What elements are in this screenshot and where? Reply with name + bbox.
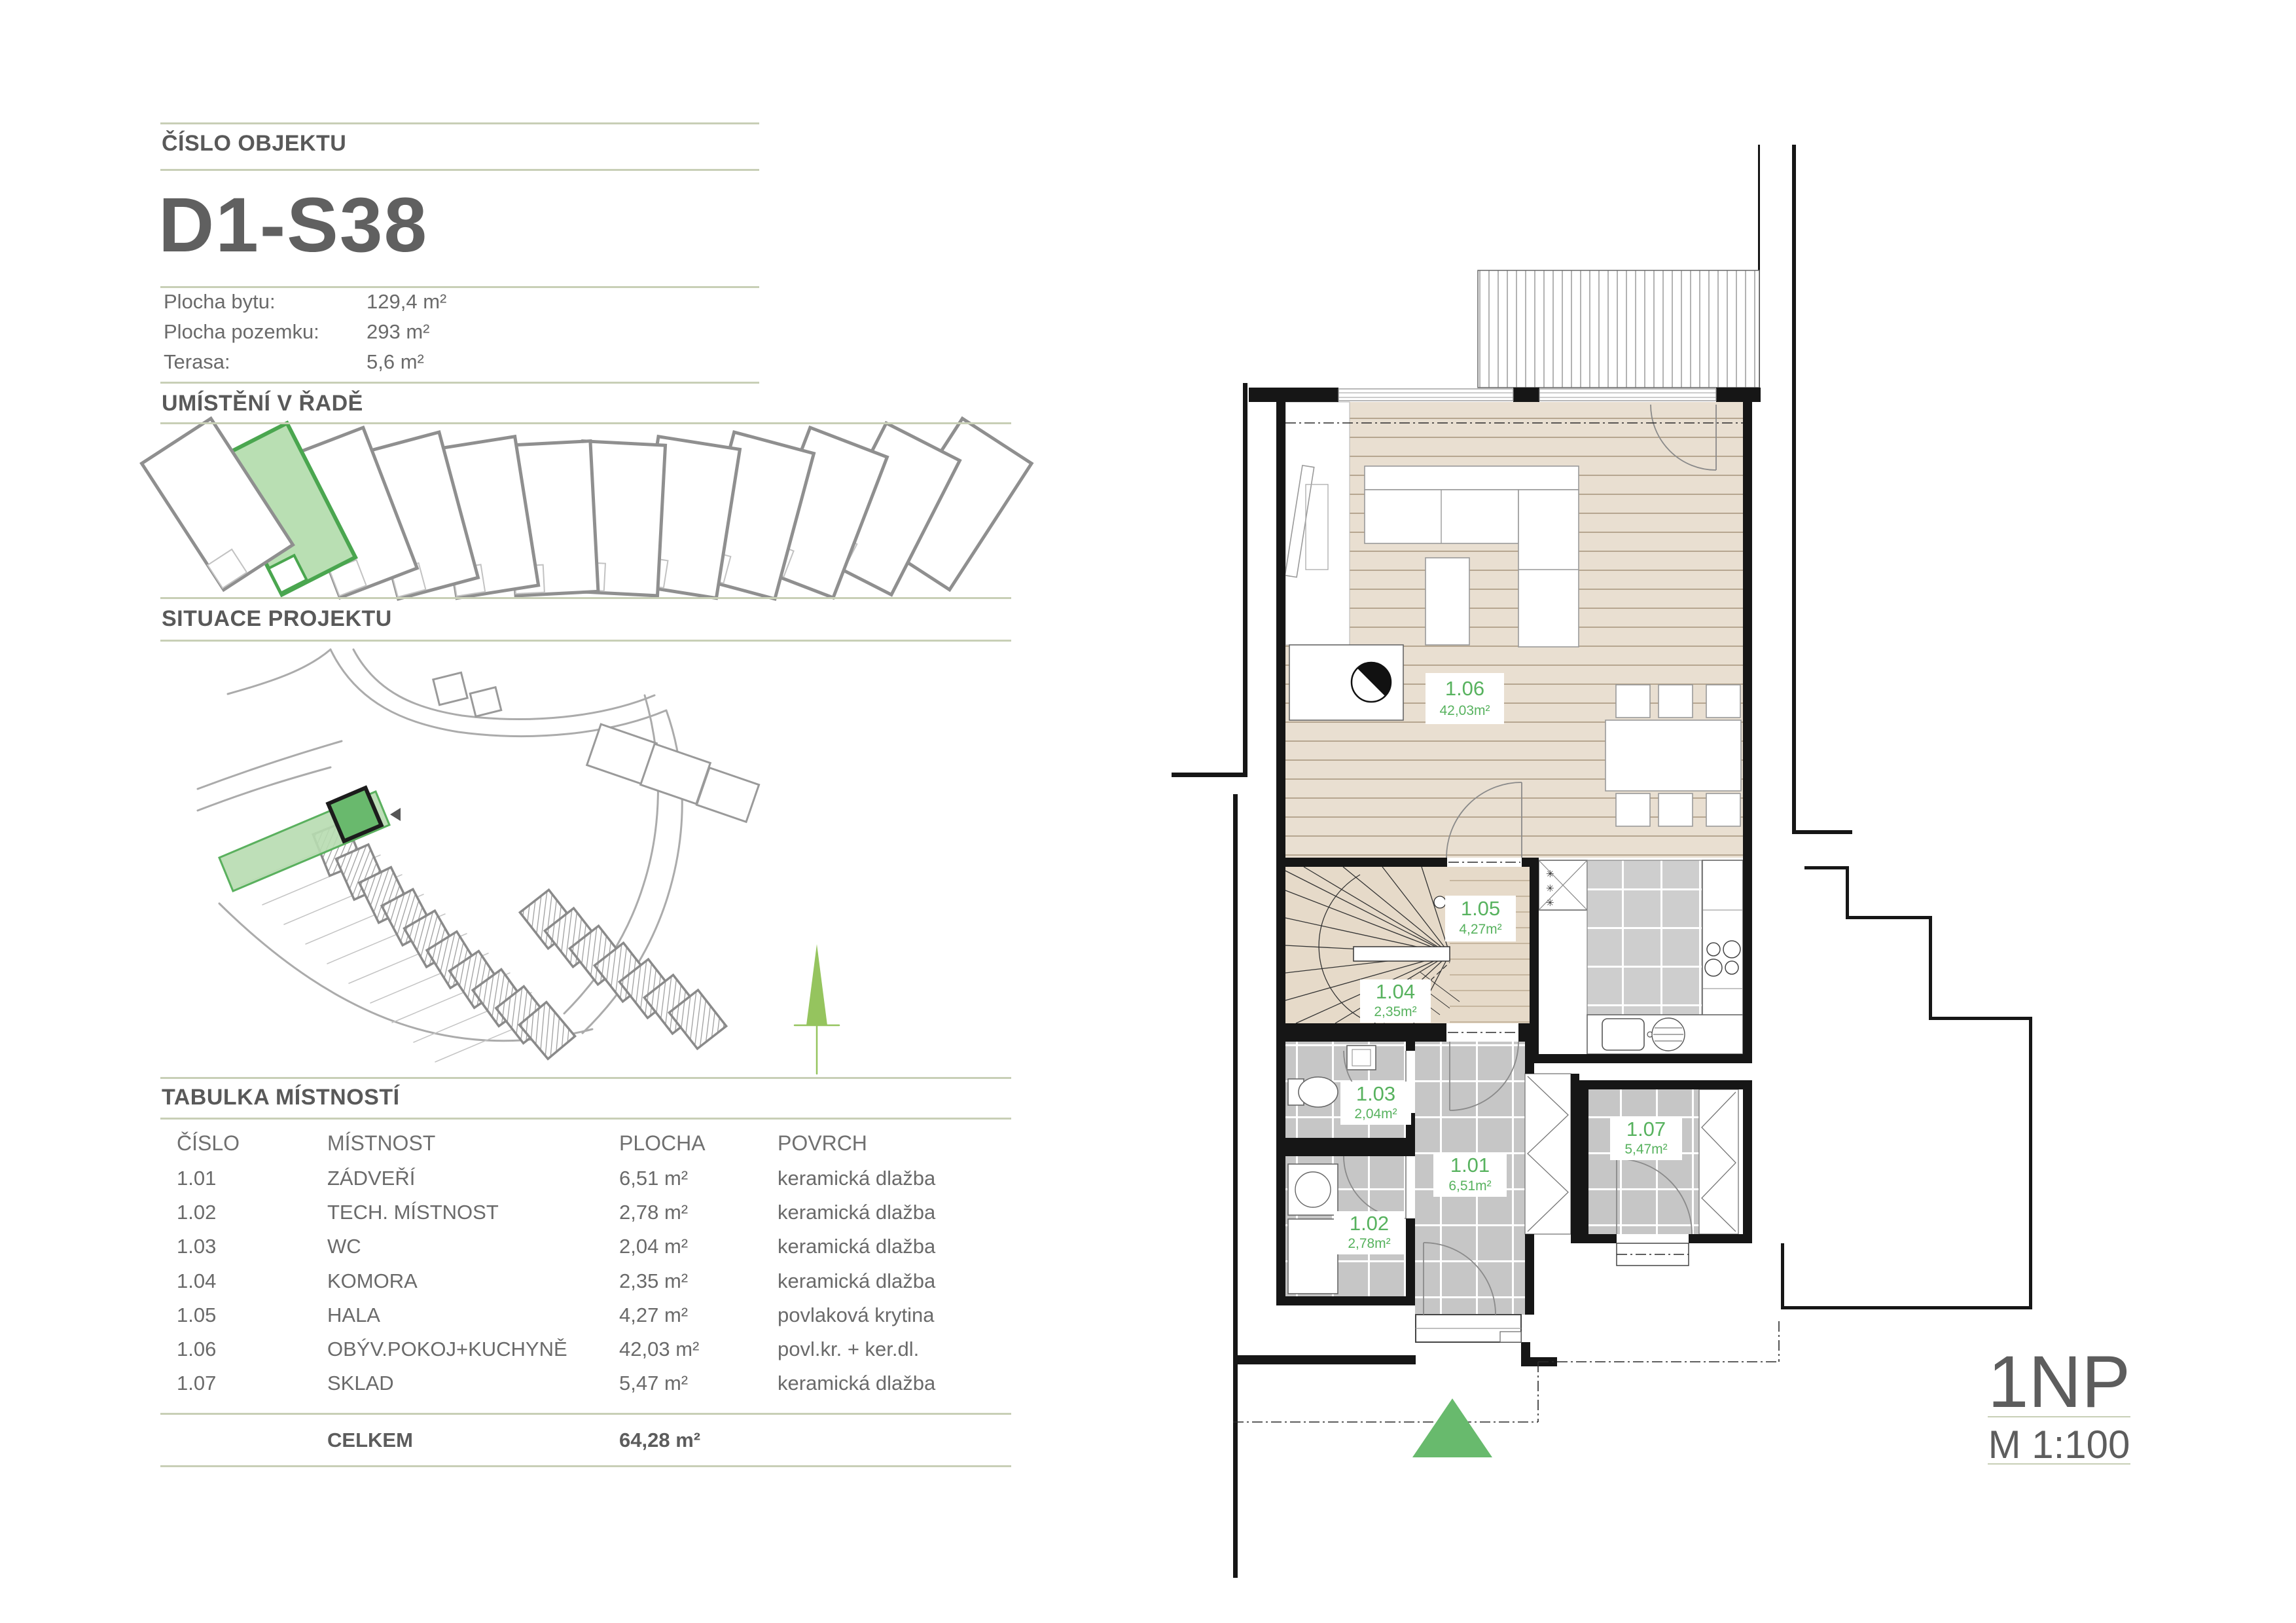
context-houses [433,672,759,822]
detail-value: 293 m² [367,320,429,344]
table-total-row: CELKEM 64,28 m² [0,1429,1047,1455]
row-section-heading: UMÍSTĚNÍ V ŘADĚ [162,391,363,416]
table-row: 1.05 HALA 4,27 m² povlaková krytina [0,1304,1047,1330]
room-label-1-05: 1.05 4,27m² [1445,896,1516,941]
divider [160,122,759,124]
entrance-arrow-icon [1412,1398,1492,1457]
table-row: 1.04 KOMORA 2,35 m² keramická dlažba [0,1269,1047,1296]
project-row-houses [313,821,575,1059]
detail-label: Plocha pozemku: [164,320,319,344]
divider [160,1413,1011,1415]
situation-section-heading: SITUACE PROJEKTU [162,606,392,632]
svg-text:1.04: 1.04 [1376,980,1415,1003]
coffee-table [1426,558,1469,645]
closet-storage [1699,1089,1738,1234]
site-plan [198,649,839,1074]
detail-value: 129,4 m² [367,290,446,314]
svg-text:✳: ✳ [1546,869,1554,880]
table-section-heading: TABULKA MÍSTNOSTÍ [162,1085,400,1110]
detail-value: 5,6 m² [367,350,424,374]
hall-floor [1450,867,1530,1023]
table-row: 1.03 WC 2,04 m² keramická dlažba [0,1235,1047,1261]
terrace-deck [1478,270,1759,388]
table-row: 1.07 SKLAD 5,47 m² keramická dlažba [0,1372,1047,1398]
sink-drainer [1652,1018,1685,1051]
washing-machine [1288,1164,1338,1294]
parcel-lines [241,835,553,1062]
svg-text:✳: ✳ [1546,883,1554,894]
room-label-1-07: 1.07 5,47m² [1610,1117,1682,1160]
room-label-1-01: 1.01 6,51m² [1433,1152,1507,1197]
north-arrow-icon [795,944,839,1074]
stove [1289,645,1403,720]
room-label-1-06: 1.06 42,03m² [1426,673,1504,724]
unit-pointer-icon [390,808,401,821]
floor-label: 1NP [1988,1340,2130,1424]
total-value: 64,28 m² [619,1429,700,1452]
svg-text:1.01: 1.01 [1450,1154,1490,1176]
col-header-mistnost: MÍSTNOST [327,1131,435,1156]
object-number-heading: ČÍSLO OBJEKTU [162,131,346,156]
divider [160,640,1011,642]
sink-basin [1602,1019,1644,1050]
col-header-plocha: PLOCHA [619,1131,706,1156]
table-row: 1.06 OBÝV.POKOJ+KUCHYNĚ 42,03 m² povl.kr… [0,1338,1047,1364]
svg-text:5,47m²: 5,47m² [1624,1142,1667,1157]
svg-text:1.02: 1.02 [1350,1212,1389,1235]
dining-set [1605,685,1741,826]
svg-text:1.03: 1.03 [1356,1082,1395,1105]
room-label-1-04: 1.04 2,35m² [1360,979,1431,1023]
detail-label: Plocha bytu: [164,290,276,314]
divider [160,1077,1011,1079]
kitchen-island [1587,860,1702,1015]
scale-label: M 1:100 [1988,1422,2130,1467]
divider [160,1465,1011,1467]
plan-sheet: ✳ ✳ ✳ [0,0,2296,1623]
object-number: D1-S38 [158,181,428,270]
divider [160,286,759,288]
total-label: CELKEM [327,1429,413,1452]
svg-text:4,27m²: 4,27m² [1459,922,1501,937]
divider [160,1118,1011,1120]
floor-plan: ✳ ✳ ✳ [1172,145,2032,1578]
divider [160,169,759,171]
room-label-1-03: 1.03 2,04m² [1340,1082,1411,1125]
table-header: ČÍSLO MÍSTNOST PLOCHA POVRCH [0,1131,1047,1158]
divider [160,382,759,384]
table-row: 1.02 TECH. MÍSTNOST 2,78 m² keramická dl… [0,1201,1047,1227]
svg-text:1.07: 1.07 [1626,1118,1666,1140]
divider [1988,1416,2130,1417]
svg-text:2,04m²: 2,04m² [1354,1106,1397,1122]
detail-label: Terasa: [164,350,230,374]
room-label-1-02: 1.02 2,78m² [1334,1211,1405,1254]
row-position-diagram [142,418,1032,599]
svg-text:1.06: 1.06 [1445,677,1484,700]
svg-text:1.05: 1.05 [1461,897,1500,920]
divider [160,422,1011,424]
closet-entry [1525,1074,1571,1234]
divider [1988,1463,2130,1465]
divider [160,597,1011,599]
svg-text:2,78m²: 2,78m² [1348,1236,1390,1251]
storage-floor [1588,1089,1699,1234]
svg-text:42,03m²: 42,03m² [1439,703,1490,718]
svg-text:6,51m²: 6,51m² [1448,1178,1491,1194]
svg-text:2,35m²: 2,35m² [1374,1004,1416,1019]
col-header-cislo: ČÍSLO [177,1131,240,1156]
entrance-sill [1416,1315,1521,1342]
col-header-povrch: POVRCH [778,1131,867,1156]
table-row: 1.01 ZÁDVEŘÍ 6,51 m² keramická dlažba [0,1167,1047,1193]
svg-text:✳: ✳ [1546,898,1554,909]
